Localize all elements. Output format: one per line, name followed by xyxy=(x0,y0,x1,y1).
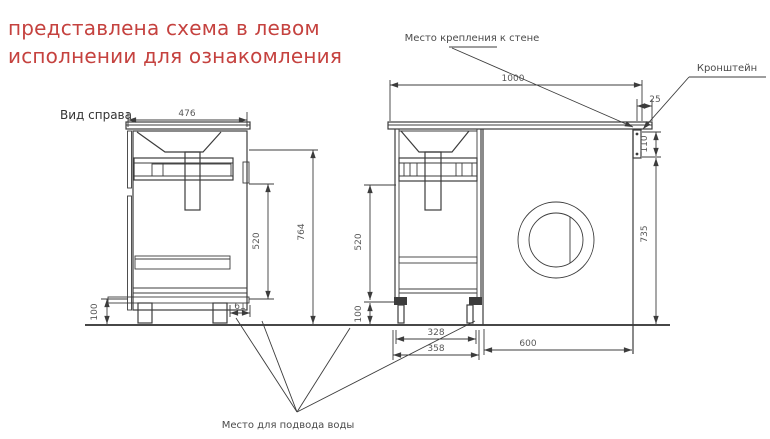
disclaimer-line2: исполнении для ознакомления xyxy=(8,42,342,70)
front-lower-shelf xyxy=(399,257,477,263)
water-leader-3 xyxy=(297,328,350,412)
side-back-rail xyxy=(243,162,249,183)
front-foot-block-left xyxy=(394,297,407,305)
side-drain-pipe xyxy=(185,152,200,210)
dim-side-water-offset: 61 xyxy=(234,302,245,312)
dim-side-leg-height: 100 xyxy=(90,303,100,320)
dim-side-inner-height: 520 xyxy=(252,232,262,249)
wall-mount-leader xyxy=(452,48,633,127)
disclaimer-line1: представлена схема в левом xyxy=(8,14,342,42)
side-sink-basin xyxy=(137,132,221,152)
side-door-panel-upper xyxy=(128,131,132,188)
bracket-screw-top xyxy=(636,133,639,136)
side-lower-shelf xyxy=(135,256,230,269)
dim-front-leg-height: 100 xyxy=(354,305,364,322)
front-countertop xyxy=(388,122,652,129)
wall-mount-label: Место крепления к стене xyxy=(405,33,540,44)
front-view-drawing xyxy=(388,122,652,354)
side-plinth xyxy=(108,297,249,303)
side-leg-back xyxy=(213,303,227,323)
washing-machine-door-inner xyxy=(529,213,583,267)
disclaimer-title: представлена схема в левом исполнении дл… xyxy=(8,14,342,70)
front-leg-left xyxy=(398,305,404,323)
front-foot-block-right xyxy=(469,297,482,305)
front-drawer-assembly xyxy=(399,158,477,181)
dim-front-overhang: 25 xyxy=(649,95,660,105)
side-leg-front xyxy=(138,303,152,323)
water-leader-4 xyxy=(297,321,475,412)
water-supply-label: Место для подвода воды xyxy=(222,420,355,431)
bracket-label: Кронштейн xyxy=(697,63,757,74)
side-view-label: Вид справа xyxy=(60,108,132,122)
front-view-dimensions: 1000 25 110 735 520 100 328 358 600 xyxy=(354,74,661,360)
dim-front-inner-height: 520 xyxy=(354,233,364,250)
dim-cabinet-inner-width: 328 xyxy=(427,328,444,338)
side-drawer-assembly xyxy=(134,158,233,180)
dim-machine-space-width: 600 xyxy=(519,339,536,349)
side-view-dimensions: 476 520 764 100 61 xyxy=(90,109,318,324)
bracket-screw-bottom xyxy=(636,153,639,156)
side-door-panel-lower xyxy=(128,196,132,310)
dim-under-top-height: 735 xyxy=(640,225,650,242)
side-countertop xyxy=(126,122,250,129)
dim-side-total-height: 764 xyxy=(297,223,307,240)
dim-front-countertop-width: 1000 xyxy=(502,74,525,84)
dim-cabinet-width: 358 xyxy=(427,344,444,354)
front-leg-right xyxy=(467,305,473,323)
dim-bracket-height: 110 xyxy=(640,135,650,152)
side-view-drawing: Вид справа xyxy=(60,108,250,323)
dim-side-width: 476 xyxy=(178,109,195,119)
front-sink-basin xyxy=(401,131,469,152)
